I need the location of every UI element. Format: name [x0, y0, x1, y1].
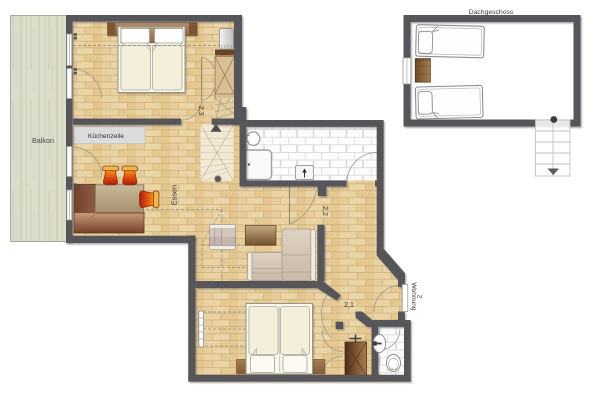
svg-text:2,1: 2,1	[344, 302, 354, 309]
svg-text:Essen: Essen	[170, 185, 179, 206]
svg-text:2: 2	[416, 295, 423, 299]
svg-text:2,2: 2,2	[321, 206, 328, 216]
svg-text:Dachgeschoss: Dachgeschoss	[469, 9, 514, 16]
svg-text:Balkon: Balkon	[32, 136, 54, 145]
svg-text:2,3: 2,3	[197, 106, 204, 116]
svg-text:Küchenzeile: Küchenzeile	[88, 133, 124, 140]
